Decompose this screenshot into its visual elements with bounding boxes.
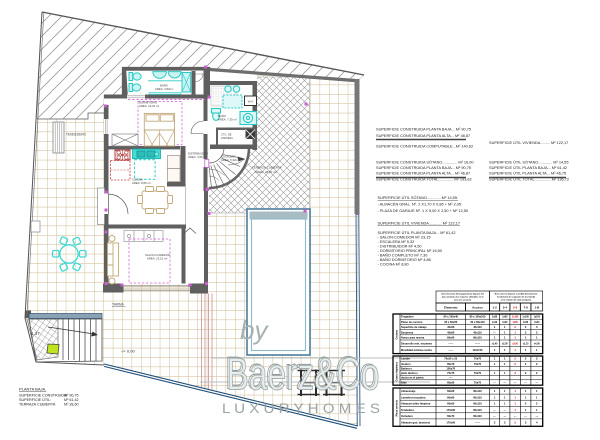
svg-text:SUPERFICIE ÚTIL PLANTA BAJA...: SUPERFICIE ÚTIL PLANTA BAJA... M² 61,42: [378, 230, 456, 235]
svg-text:170x60: 170x60: [446, 408, 455, 412]
svg-text:70x70: 70x70: [474, 362, 482, 366]
svg-text:---: ---: [493, 415, 496, 418]
svg-text:---: ---: [535, 382, 538, 385]
svg-text:---: ---: [535, 415, 538, 418]
svg-text:SUPERFICIE ÚTIL SÓTANO........: SUPERFICIE ÚTIL SÓTANO............. M² 1…: [489, 160, 568, 165]
svg-text:60x60: 60x60: [447, 336, 455, 340]
svg-text:SUPERFICIE CONSTRUIDA PLANTA B: SUPERFICIE CONSTRUIDA PLANTA BAJA... M² …: [376, 127, 471, 132]
svg-text:60x110: 60x110: [473, 408, 482, 412]
svg-text:Inodoro: Inodoro: [401, 362, 411, 366]
svg-text:AREA: 10,32 m²: AREA: 10,32 m²: [139, 104, 159, 108]
svg-text:60x110: 60x110: [473, 402, 482, 406]
svg-text:1x60: 1x60: [513, 322, 519, 324]
svg-text:SUPERFICIE CONSTRUIDA PLANTA A: SUPERFICIE CONSTRUIDA PLANTA ALTA... M² …: [376, 171, 470, 176]
svg-text:---: ---: [493, 409, 496, 412]
svg-text:5-6: 5-6: [513, 306, 518, 310]
svg-text:SUPERFICIE ÚTIL PLANTA BAJA...: SUPERFICIE ÚTIL PLANTA BAJA... M² 61,42: [489, 165, 567, 170]
svg-text:SUPERFICIE CONSTRUIDA:: SUPERFICIE CONSTRUIDA:: [19, 394, 68, 398]
svg-text:W.V: W.V: [248, 100, 254, 104]
svg-text:Plano de cocción: Plano de cocción: [401, 320, 423, 324]
svg-text:170x60: 170x60: [446, 421, 455, 425]
svg-text:Bidé: Bidé: [401, 381, 407, 385]
svg-text:80 x 100x40: 80 x 100x40: [444, 315, 459, 319]
svg-text:Bañera o: Bañera o: [401, 367, 413, 371]
svg-text:60x60: 60x60: [447, 381, 455, 385]
svg-text:60x110: 60x110: [473, 395, 482, 399]
svg-text:1x60: 1x60: [534, 322, 540, 324]
svg-text:100x70: 100x70: [446, 367, 455, 371]
svg-text:60x70: 60x70: [447, 414, 455, 418]
svg-text:60x110: 60x110: [473, 389, 482, 393]
svg-text:110x150: 110x150: [473, 348, 484, 352]
svg-text:- BAÑO COMPLETO M² 7,30: - BAÑO COMPLETO M² 7,30: [378, 253, 428, 258]
svg-text:---: ---: [524, 415, 527, 418]
svg-text:Lavadora+secadora: Lavadora+secadora: [401, 395, 426, 399]
svg-text:1x100: 1x100: [534, 317, 541, 319]
svg-text:Cocinas: Cocinas: [395, 329, 398, 339]
svg-text:60x60: 60x60: [447, 389, 455, 393]
svg-text:AREA: 23,15 m²: AREA: 23,15 m²: [147, 257, 167, 261]
svg-text:SUPERFICIE ÚTIL PLANTA ALTA...: SUPERFICIE ÚTIL PLANTA ALTA... M² 46,75: [489, 171, 566, 176]
svg-text:30 x 60x60: 30 x 60x60: [444, 320, 458, 324]
svg-text:------: ------: [475, 422, 480, 425]
svg-text:TERRAZA CUBIERTA: TERRAZA CUBIERTA: [19, 403, 56, 407]
svg-text:---: ---: [493, 382, 496, 385]
svg-text:---: ---: [514, 415, 517, 418]
svg-text:1-2: 1-2: [493, 306, 498, 310]
svg-text:- SALON-COMEDOR M² 23,15: - SALON-COMEDOR M² 23,15: [378, 235, 431, 240]
svg-text:1x80: 1x80: [502, 317, 508, 319]
svg-text:45x60: 45x60: [447, 325, 455, 329]
svg-text:la admisión de ocupación de la: la admisión de ocupación de la vivienda: [497, 297, 536, 299]
svg-text:TENDEDERO: TENDEDERO: [66, 133, 87, 137]
svg-text:Movilidad mínima cocina: Movilidad mínima cocina: [401, 348, 432, 352]
svg-text:SUPERFICIE CONSTRUIDA COMPUTAB: SUPERFICIE CONSTRUIDA COMPUTABLE...M² 14…: [376, 144, 473, 149]
svg-text:Acceso: Acceso: [472, 306, 483, 310]
svg-text:AREA: 8,80 m²: AREA: 8,80 m²: [132, 181, 151, 185]
svg-text:70x70: 70x70: [474, 381, 482, 385]
svg-text:1x80: 1x80: [492, 317, 498, 319]
svg-text:60x70: 60x70: [447, 362, 455, 366]
svg-text:SUPERFICIE CONSTRUIDA PLANTA A: SUPERFICIE CONSTRUIDA PLANTA ALTA... M² …: [376, 133, 470, 138]
svg-text:Superficie de trabajo: Superficie de trabajo: [401, 325, 427, 329]
svg-text:SUPERFICIE ÚTIL VIVIENDA......: SUPERFICIE ÚTIL VIVIENDA............ M² …: [378, 221, 461, 226]
svg-text:70x70: 70x70: [474, 371, 482, 375]
svg-text:60x110: 60x110: [473, 414, 482, 418]
svg-text:SUPERFICIE CONSTRUIDA PLANTA B: SUPERFICIE CONSTRUIDA PLANTA BAJA... M² …: [376, 165, 471, 170]
svg-text:---: ---: [503, 415, 506, 418]
svg-text:AREA: 4,50 m²: AREA: 4,50 m²: [188, 155, 207, 159]
svg-text:7-8: 7-8: [524, 306, 529, 310]
svg-text:80 x 100x100: 80 x 100x100: [470, 315, 486, 319]
svg-text:Almacén gral. (trastero): Almacén gral. (trastero): [401, 421, 430, 425]
svg-text:- ESCALERA M² 5,32: - ESCALERA M² 5,32: [378, 239, 415, 244]
svg-text:zona a la cercanía.: zona a la cercanía.: [454, 300, 472, 302]
svg-text:Lavabo: Lavabo: [401, 357, 410, 361]
svg-text:45x110: 45x110: [473, 325, 482, 329]
svg-text:by: by: [240, 315, 269, 345]
svg-text:SUPERFICIE ÚTIL SÓTANO........: SUPERFICIE ÚTIL SÓTANO..............M² 1…: [378, 195, 459, 200]
svg-text:60x60: 60x60: [447, 395, 455, 399]
svg-text:L U X U R Y H O M E S: L U X U R Y H O M E S: [222, 401, 380, 416]
svg-text:- BAÑO DORMITORIO M² 4,86: - BAÑO DORMITORIO M² 4,86: [378, 257, 431, 262]
svg-text:75x75: 75x75: [447, 371, 455, 375]
svg-text:45x60: 45x60: [447, 330, 455, 334]
svg-text:- DISTRIBUIDOR M² 4,50: - DISTRIBUIDOR M² 4,50: [378, 244, 422, 249]
svg-text:AREA: 28,60 m²: AREA: 28,60 m²: [255, 170, 277, 174]
svg-text:Almacen útiles limpieza: Almacen útiles limpieza: [401, 402, 431, 406]
svg-text:PLANTA BAJA.: PLANTA BAJA.: [19, 387, 46, 392]
svg-text:Almacenaje: Almacenaje: [401, 389, 416, 393]
svg-text:Pieza servicio: Pieza servicio: [395, 399, 398, 416]
svg-text:SUPERFICIE ÚTIL VIVIENDA......: SUPERFICIE ÚTIL VIVIENDA......... M² 122…: [489, 140, 568, 145]
svg-text:60x110: 60x110: [473, 336, 482, 340]
svg-text:70x55 x 25: 70x55 x 25: [444, 357, 458, 361]
svg-text:Desarrollo mín. encimera: Desarrollo mín. encimera: [401, 341, 433, 345]
svg-text:- ALMACÉN GRAL. Nº. 2 X1,70 X: - ALMACÉN GRAL. Nº. 2 X1,70 X 0,85 + M² …: [378, 202, 462, 207]
svg-text:Despensa: Despensa: [401, 330, 414, 334]
svg-text:Hueco para nevera: Hueco para nevera: [401, 336, 425, 340]
svg-text:Tendedero: Tendedero: [401, 408, 414, 412]
svg-text:SUPERFICIE CONSTRUIDA SÓTANO..: SUPERFICIE CONSTRUIDA SÓTANO............…: [376, 160, 474, 165]
svg-text:LIMPIEZA: LIMPIEZA: [221, 136, 233, 140]
svg-text:plato ducha o: plato ducha o: [401, 371, 418, 375]
svg-text:ducha en el pavim.: ducha en el pavim.: [401, 376, 424, 380]
svg-text:------: ------: [475, 342, 480, 345]
svg-text:1x100: 1x100: [512, 317, 519, 319]
svg-text:1x60: 1x60: [523, 322, 529, 324]
svg-text:Cuarto higiénico: Cuarto higiénico: [395, 361, 398, 381]
svg-text:1-B: 1-B: [534, 306, 539, 310]
svg-text:---: ---: [503, 409, 506, 412]
svg-text:1x100: 1x100: [522, 317, 529, 319]
svg-text:------: ------: [448, 349, 453, 352]
svg-text:-/+ 0,00: -/+ 0,00: [121, 349, 135, 354]
svg-text:30 x 60x110: 30 x 60x110: [470, 320, 485, 324]
svg-text:- COCINA M² 8,80: - COCINA M² 8,80: [378, 262, 409, 267]
svg-text:-1.37: -1.37: [30, 331, 40, 336]
svg-text:3-4: 3-4: [503, 306, 508, 310]
svg-text:-----: -----: [449, 377, 453, 380]
svg-text:60x60: 60x60: [447, 402, 455, 406]
svg-text:M² 90,75: M² 90,75: [64, 394, 79, 398]
svg-text:M² 28,60: M² 28,60: [64, 403, 79, 407]
svg-text:M² 61,42: M² 61,42: [64, 398, 79, 402]
svg-text:Vertedero: Vertedero: [401, 414, 413, 418]
svg-text:70x70: 70x70: [474, 357, 482, 361]
svg-text:45x110: 45x110: [473, 330, 482, 334]
svg-text:Baerz&Co: Baerz&Co: [227, 349, 380, 400]
svg-text:---: ---: [524, 382, 527, 385]
svg-text:---: ---: [514, 382, 517, 385]
svg-text:TARIMA: TARIMA: [112, 303, 125, 307]
svg-text:------: ------: [448, 342, 453, 345]
svg-text:Fregadero: Fregadero: [401, 315, 414, 319]
svg-text:---: ---: [503, 382, 506, 385]
svg-text:SUPERFICIE ÚTIL:: SUPERFICIE ÚTIL:: [19, 397, 51, 402]
svg-text:AREA: 5,32m²: AREA: 5,32m²: [221, 158, 239, 162]
svg-text:1x30: 1x30: [492, 322, 498, 324]
svg-text:Elemento: Elemento: [444, 306, 458, 310]
svg-text:- DORMITORIO PRINCIPAL M² 16,5: - DORMITORIO PRINCIPAL M² 16,50: [378, 248, 442, 253]
svg-text:---: ---: [493, 331, 496, 334]
svg-text:1x60: 1x60: [502, 322, 508, 324]
svg-text:AREA: 3,80m²: AREA: 3,80m²: [155, 87, 173, 91]
svg-text:AREA: 7,30 m²: AREA: 7,30 m²: [218, 118, 237, 122]
svg-text:- PLAZA DE GARAJE Nº. 1 X 5,0: - PLAZA DE GARAJE Nº. 1 X 5,00 X 2,50 + …: [378, 208, 469, 213]
